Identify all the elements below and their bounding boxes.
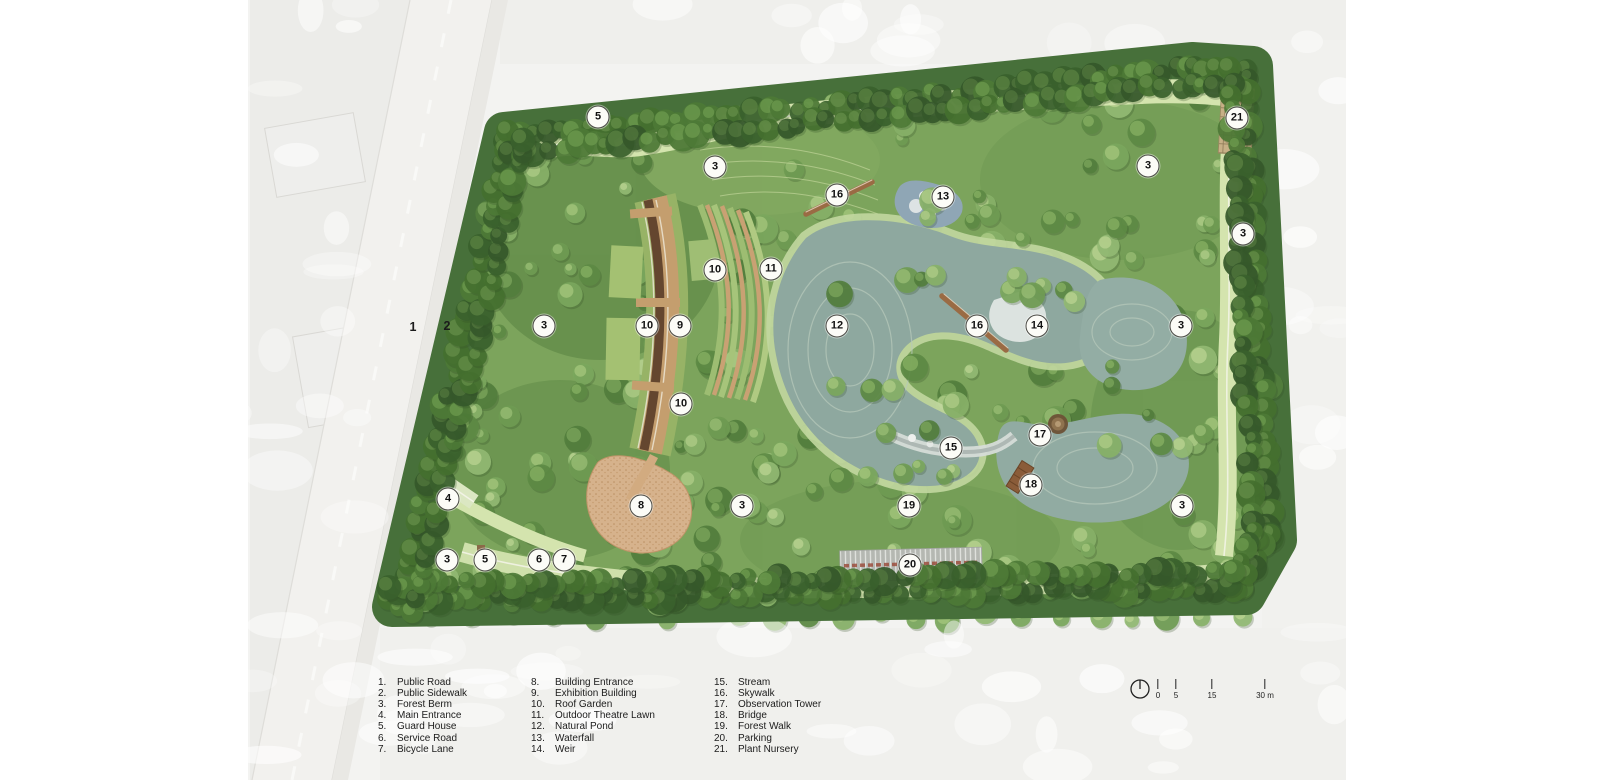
observation-tower (1048, 414, 1068, 434)
guard-house-south (477, 545, 485, 553)
site-plan-page: 1233333333455678910101011121314151616171… (0, 0, 1600, 780)
park-site (377, 55, 1286, 625)
site-plan-rendering (0, 0, 1600, 780)
